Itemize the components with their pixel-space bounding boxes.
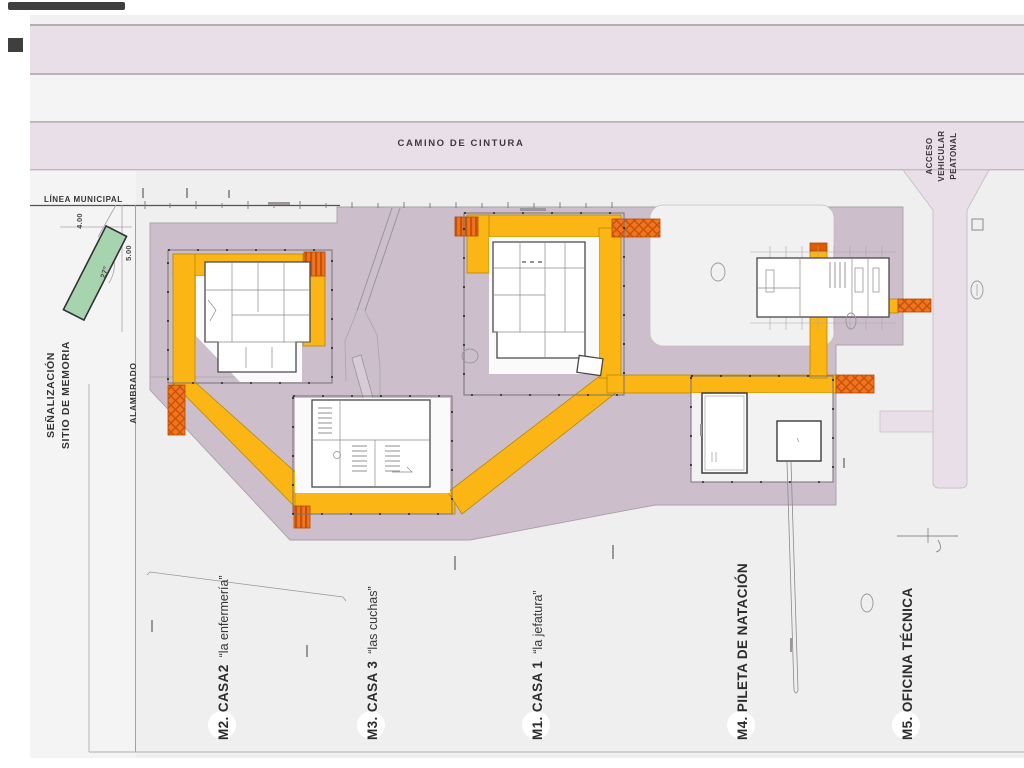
svg-text:M1. CASA 1“la jefatura”: M1. CASA 1“la jefatura” — [530, 591, 545, 741]
svg-text:PEATONAL: PEATONAL — [949, 132, 958, 179]
casa2-footprint — [205, 262, 310, 372]
road-bands — [30, 15, 1024, 170]
oficina-north-cap — [810, 243, 827, 251]
svg-text:ACCESO: ACCESO — [925, 137, 934, 174]
dim-5m: 5.00 — [124, 245, 133, 261]
svg-text:M3. CASA 3“las cuchas”: M3. CASA 3“las cuchas” — [365, 586, 380, 740]
oficina-footprint — [750, 246, 896, 330]
corner-mark-square — [8, 38, 23, 52]
casa3-footprint — [312, 400, 430, 487]
road-side-patch — [880, 411, 933, 432]
svg-text:M5. OFICINA TÉCNICA: M5. OFICINA TÉCNICA — [900, 587, 915, 740]
bridge-oficina-east — [898, 299, 931, 312]
corner-mark-bar — [8, 2, 125, 10]
bridge-casa2-west — [168, 385, 185, 435]
pool-annex — [777, 421, 821, 461]
svg-text:M4. PILETA DE NATACIÓN: M4. PILETA DE NATACIÓN — [735, 563, 750, 740]
site-plan-page: CAMINO DE CINTURA LÍNEA MUNICIPAL 4.00 5… — [0, 0, 1024, 768]
swimming-pool — [702, 393, 747, 473]
bridge-casa3-south — [294, 506, 310, 528]
bridge-casa1-east — [612, 219, 660, 237]
alambrado-label: ALAMBRADO — [128, 362, 138, 423]
svg-text:M2. CASA2“la enfermería”: M2. CASA2“la enfermería” — [216, 575, 231, 740]
bridge-pool-east — [836, 375, 874, 393]
linea-municipal-label: LÍNEA MUNICIPAL — [44, 195, 123, 204]
svg-text:VEHICULAR: VEHICULAR — [937, 130, 946, 181]
dim-4m: 4.00 — [75, 213, 84, 229]
acceso-label: ACCESO VEHICULAR PEATONAL — [925, 130, 958, 181]
svg-text:SEÑALIZACIÓN: SEÑALIZACIÓN — [44, 352, 57, 438]
site-plan-drawing: CAMINO DE CINTURA LÍNEA MUNICIPAL 4.00 5… — [0, 0, 1024, 768]
svg-text:SITIO DE MEMORIA: SITIO DE MEMORIA — [60, 341, 72, 449]
camino-de-cintura-label: CAMINO DE CINTURA — [398, 138, 525, 149]
bridge-casa1-west — [455, 217, 478, 236]
